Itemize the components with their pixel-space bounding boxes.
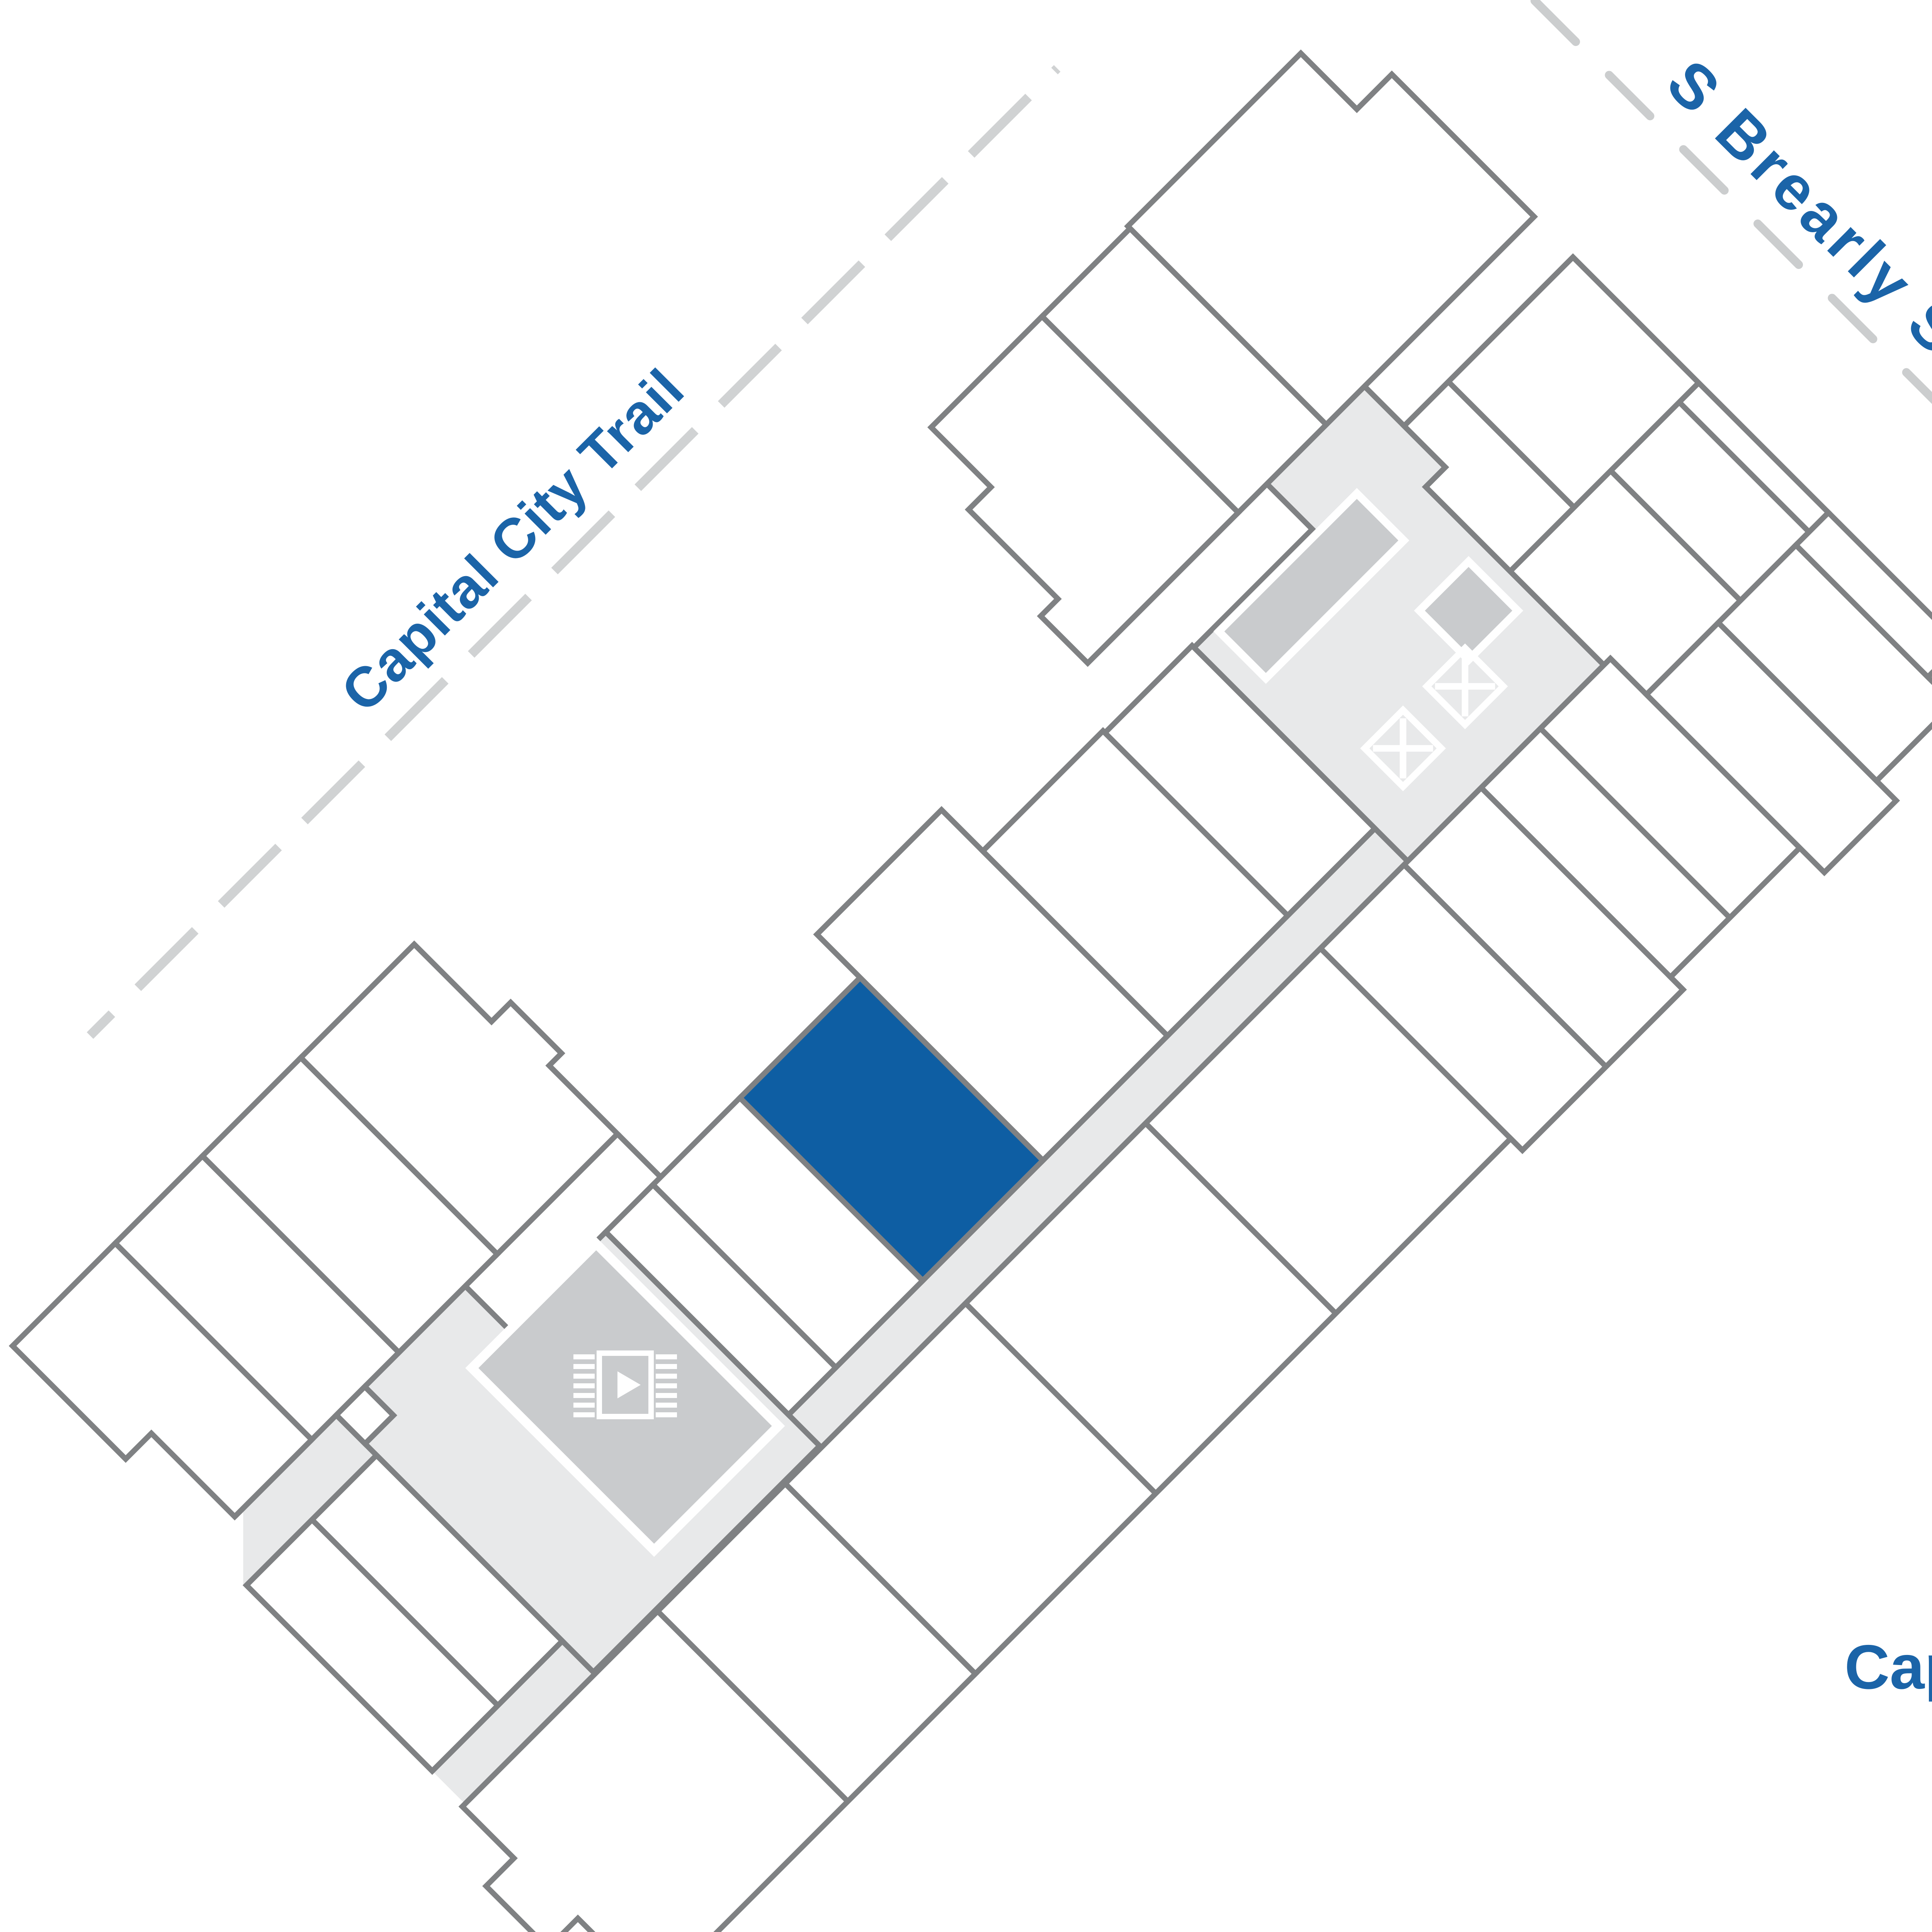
svg-text:Capital City Trail: Capital City Trail xyxy=(329,357,696,724)
svg-text:Capitol: Capitol xyxy=(1845,1632,1932,1702)
